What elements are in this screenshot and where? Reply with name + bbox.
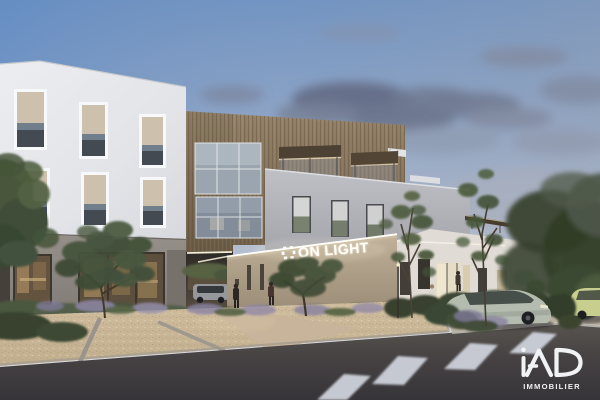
svg-text:IMMOBILIER: IMMOBILIER (523, 382, 581, 391)
